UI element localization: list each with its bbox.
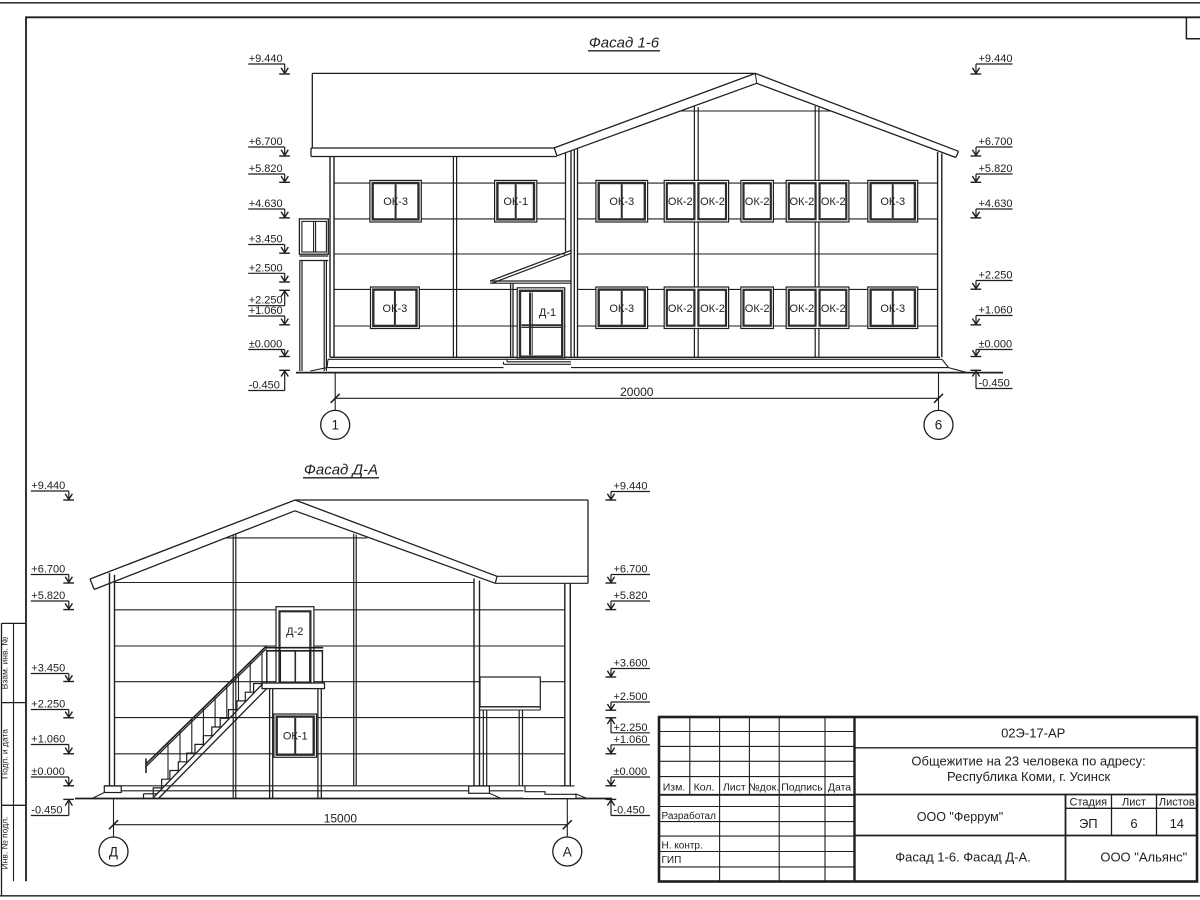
svg-text:ОК-2: ОК-2 (790, 303, 815, 315)
svg-text:6: 6 (1130, 816, 1137, 831)
svg-text:+2.500: +2.500 (249, 262, 283, 274)
svg-text:-0.450: -0.450 (979, 378, 1010, 390)
svg-text:+1.060: +1.060 (614, 734, 648, 746)
svg-text:+3.450: +3.450 (31, 663, 65, 675)
svg-text:Д-1: Д-1 (539, 307, 556, 319)
svg-text:+6.700: +6.700 (249, 136, 283, 148)
svg-text:Д: Д (109, 844, 118, 859)
svg-text:+4.630: +4.630 (249, 198, 283, 210)
svg-text:А: А (563, 844, 572, 859)
svg-text:+2.250: +2.250 (979, 270, 1013, 282)
svg-text:№док.: №док. (748, 781, 779, 793)
svg-text:+5.820: +5.820 (249, 163, 283, 175)
svg-text:Стадия: Стадия (1070, 796, 1108, 808)
svg-text:ОК-3: ОК-3 (880, 303, 905, 315)
svg-text:ОК-3: ОК-3 (609, 196, 634, 208)
svg-text:Инв. № подл.: Инв. № подл. (0, 817, 10, 870)
svg-text:±0.000: ±0.000 (614, 766, 648, 778)
svg-text:Лист: Лист (1122, 796, 1146, 808)
svg-text:-0.450: -0.450 (249, 380, 280, 392)
svg-text:6: 6 (935, 418, 943, 433)
svg-text:02Э-17-АР: 02Э-17-АР (1001, 726, 1065, 741)
svg-text:ОК-2: ОК-2 (745, 196, 770, 208)
svg-text:Кол.: Кол. (694, 781, 715, 793)
svg-text:ОК-1: ОК-1 (503, 196, 528, 208)
svg-text:Подп. и дата: Подп. и дата (0, 729, 10, 779)
svg-text:+5.820: +5.820 (979, 163, 1013, 175)
svg-text:ОК-2: ОК-2 (790, 196, 815, 208)
svg-text:ОК-3: ОК-3 (383, 303, 408, 315)
svg-text:+1.060: +1.060 (249, 305, 283, 317)
svg-text:ОК-2: ОК-2 (668, 303, 693, 315)
svg-text:Изм.: Изм. (663, 781, 686, 793)
svg-text:Фасад 1-6: Фасад 1-6 (589, 35, 660, 52)
svg-text:+9.440: +9.440 (249, 53, 283, 65)
svg-text:Н. контр.: Н. контр. (662, 841, 703, 852)
svg-text:±0.000: ±0.000 (249, 339, 283, 351)
svg-text:ОК-3: ОК-3 (383, 196, 408, 208)
svg-text:+2.250: +2.250 (614, 722, 648, 734)
svg-text:Республика Коми, г. Усинск: Республика Коми, г. Усинск (947, 769, 1110, 784)
svg-text:-0.450: -0.450 (31, 805, 62, 817)
svg-text:Д-2: Д-2 (286, 626, 303, 638)
svg-text:15000: 15000 (324, 812, 358, 826)
svg-text:Листов: Листов (1159, 796, 1195, 808)
svg-text:+2.250: +2.250 (31, 699, 65, 711)
svg-text:ОК-3: ОК-3 (609, 303, 634, 315)
svg-text:+9.440: +9.440 (31, 480, 65, 492)
svg-text:Взам. инв. №: Взам. инв. № (0, 637, 10, 690)
svg-text:+2.500: +2.500 (614, 691, 648, 703)
svg-text:ОК-2: ОК-2 (821, 196, 846, 208)
svg-text:+4.630: +4.630 (979, 198, 1013, 210)
svg-text:+1.060: +1.060 (31, 734, 65, 746)
svg-text:ОК-1: ОК-1 (283, 731, 308, 743)
svg-text:ООО "Феррум": ООО "Феррум" (917, 810, 1003, 824)
svg-text:+3.600: +3.600 (614, 658, 648, 670)
svg-text:ОК-2: ОК-2 (821, 303, 846, 315)
svg-text:Подпись: Подпись (781, 781, 823, 793)
svg-text:+6.700: +6.700 (31, 564, 65, 576)
svg-text:Лист: Лист (723, 781, 746, 793)
svg-text:ОК-2: ОК-2 (668, 196, 693, 208)
svg-text:Разработал: Разработал (662, 810, 717, 822)
svg-text:+3.450: +3.450 (249, 234, 283, 246)
svg-text:-0.450: -0.450 (614, 805, 645, 817)
svg-text:14: 14 (1170, 816, 1184, 831)
svg-text:+6.700: +6.700 (979, 136, 1013, 148)
svg-text:±0.000: ±0.000 (979, 339, 1013, 351)
svg-text:ОК-2: ОК-2 (700, 303, 725, 315)
svg-text:20000: 20000 (620, 385, 654, 399)
svg-text:Дата: Дата (828, 781, 851, 793)
svg-text:±0.000: ±0.000 (31, 766, 65, 778)
svg-text:ООО "Альянс": ООО "Альянс" (1100, 850, 1187, 865)
svg-text:ОК-2: ОК-2 (700, 196, 725, 208)
svg-text:Общежитие на 23 человека по ад: Общежитие на 23 человека по адресу: (911, 754, 1145, 769)
svg-text:Фасад Д-А: Фасад Д-А (304, 462, 378, 479)
svg-text:+6.700: +6.700 (614, 564, 648, 576)
svg-text:+5.820: +5.820 (31, 590, 65, 602)
svg-text:ОК-2: ОК-2 (745, 303, 770, 315)
svg-text:+9.440: +9.440 (979, 53, 1013, 65)
svg-text:+5.820: +5.820 (614, 590, 648, 602)
svg-text:+1.060: +1.060 (979, 305, 1013, 317)
svg-text:1: 1 (331, 418, 339, 433)
svg-text:ЭП: ЭП (1079, 816, 1098, 831)
svg-text:ГИП: ГИП (662, 855, 682, 866)
svg-text:+9.440: +9.440 (614, 481, 648, 493)
svg-text:ОК-3: ОК-3 (880, 196, 905, 208)
svg-text:Фасад 1-6. Фасад Д-А.: Фасад 1-6. Фасад Д-А. (895, 850, 1031, 865)
